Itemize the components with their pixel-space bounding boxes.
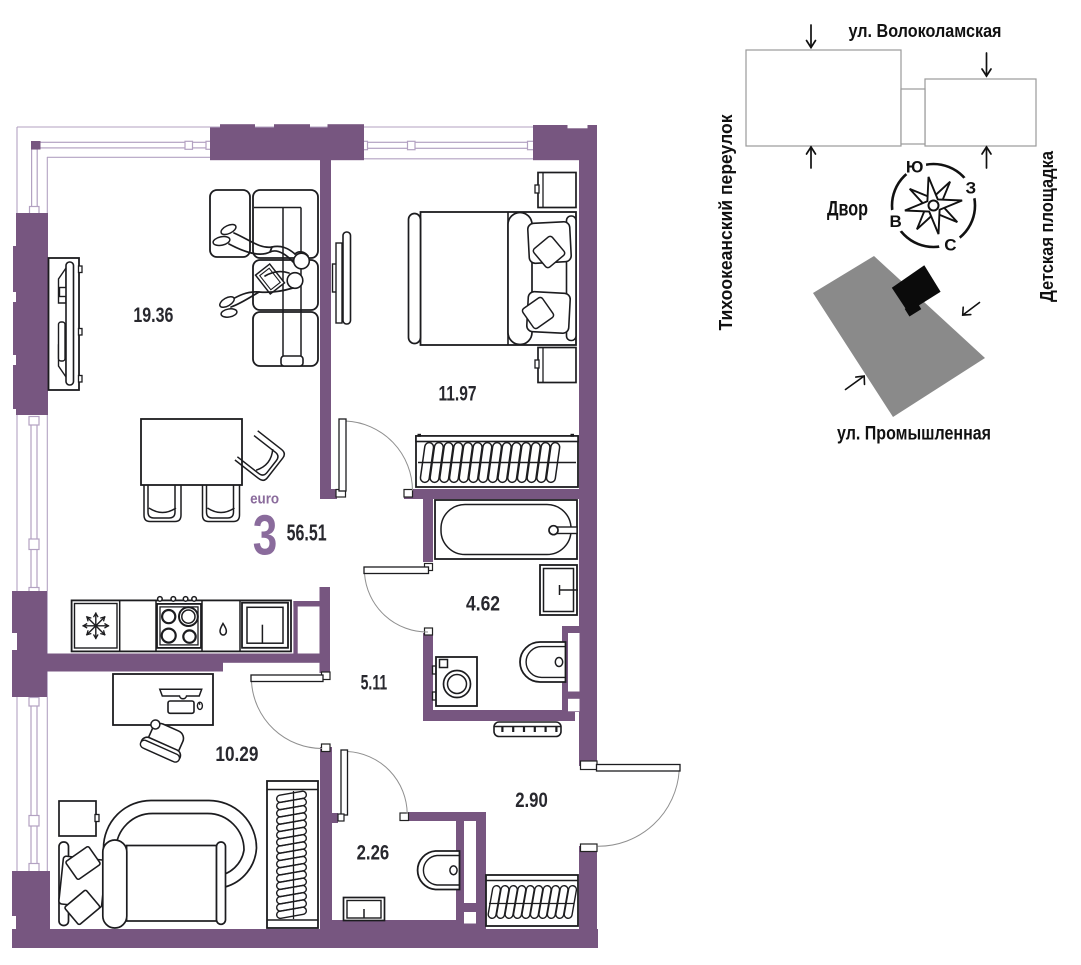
svg-text:56.51: 56.51 xyxy=(287,520,327,546)
svg-text:19.36: 19.36 xyxy=(133,304,173,327)
svg-text:4.62: 4.62 xyxy=(466,593,500,616)
svg-text:5.11: 5.11 xyxy=(361,671,388,694)
svg-text:Тихоокеанский переулок: Тихоокеанский переулок xyxy=(716,114,736,331)
svg-text:Ю: Ю xyxy=(906,158,924,177)
svg-text:11.97: 11.97 xyxy=(439,383,477,406)
svg-text:3: 3 xyxy=(253,504,278,568)
svg-text:В: В xyxy=(890,212,902,231)
svg-text:ул. Промышленная: ул. Промышленная xyxy=(837,424,991,445)
svg-text:2.26: 2.26 xyxy=(357,842,390,865)
svg-text:10.29: 10.29 xyxy=(215,743,258,766)
svg-text:2.90: 2.90 xyxy=(515,789,548,812)
svg-text:Двор: Двор xyxy=(827,197,868,221)
svg-text:С: С xyxy=(944,236,956,255)
svg-text:ул. Волоколамская: ул. Волоколамская xyxy=(849,21,1002,41)
svg-text:З: З xyxy=(965,179,976,198)
svg-text:Детская площадка: Детская площадка xyxy=(1037,150,1057,302)
